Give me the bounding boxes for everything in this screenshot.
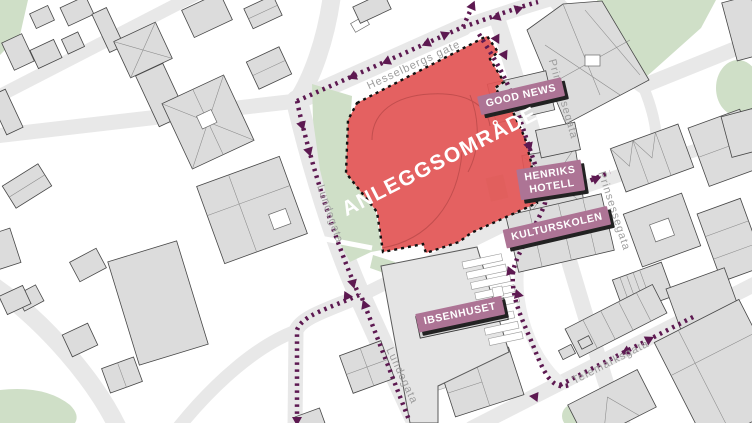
building <box>30 6 55 29</box>
building <box>102 357 143 393</box>
building <box>70 248 107 282</box>
building <box>162 75 254 169</box>
map-canvas: Hesselbergs gate Lundegata Lundegata Pri… <box>0 0 752 423</box>
building <box>182 0 233 37</box>
building <box>623 193 700 267</box>
detour-map: Hesselbergs gate Lundegata Lundegata Pri… <box>0 0 752 423</box>
building <box>654 299 752 423</box>
building <box>0 228 21 270</box>
building <box>60 0 94 26</box>
building <box>558 344 575 359</box>
building <box>2 164 51 208</box>
building <box>244 0 282 29</box>
building <box>610 124 693 192</box>
building <box>197 156 308 263</box>
building <box>246 47 291 89</box>
building <box>108 241 208 365</box>
building <box>353 0 391 23</box>
